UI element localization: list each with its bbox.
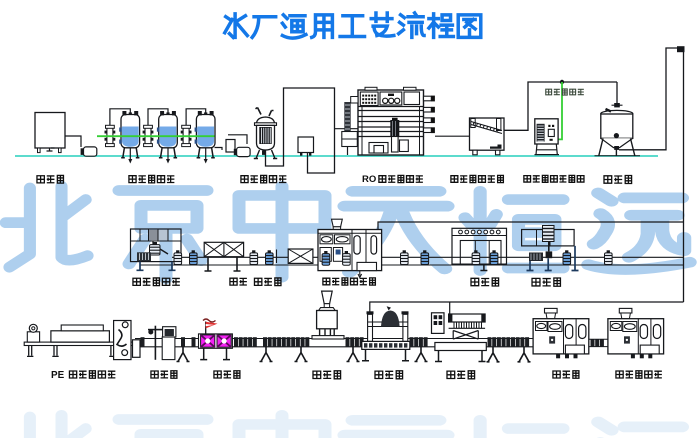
svg-text:PE: PE	[51, 370, 65, 381]
svg-text:RO: RO	[362, 174, 376, 185]
